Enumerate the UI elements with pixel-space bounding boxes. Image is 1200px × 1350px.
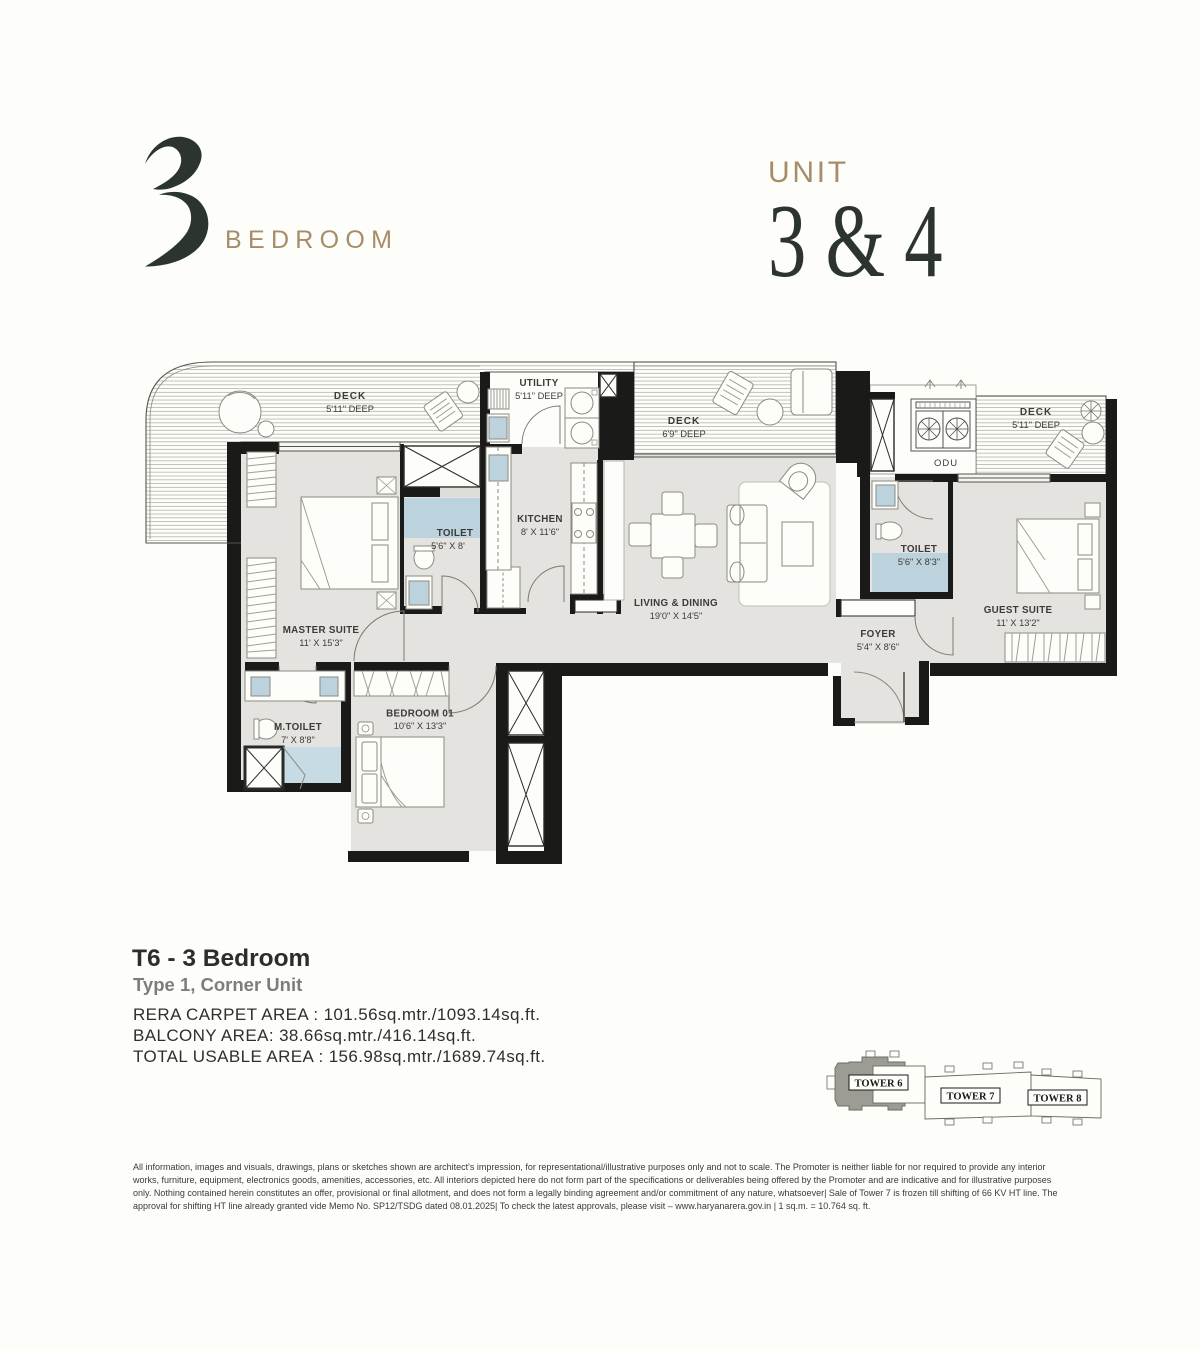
svg-text:TOILET: TOILET [437,528,473,539]
svg-text:TOILET: TOILET [901,544,937,555]
svg-text:LIVING & DINING: LIVING & DINING [634,598,718,609]
svg-text:TOWER 7: TOWER 7 [947,1092,995,1103]
svg-text:5'6" X 8'3": 5'6" X 8'3" [898,557,940,567]
svg-text:7' X 8'8": 7' X 8'8" [281,735,315,745]
svg-text:11' X 13'2": 11' X 13'2" [996,618,1039,628]
svg-text:8' X 11'6": 8' X 11'6" [521,527,559,537]
svg-text:5'11" DEEP: 5'11" DEEP [1012,420,1060,430]
svg-text:DECK: DECK [334,391,366,402]
svg-text:19'0" X 14'5": 19'0" X 14'5" [650,611,703,621]
svg-text:UTILITY: UTILITY [519,378,558,389]
svg-text:10'6" X 13'3": 10'6" X 13'3" [394,721,447,731]
svg-text:5'4" X 8'6": 5'4" X 8'6" [857,642,899,652]
svg-text:GUEST SUITE: GUEST SUITE [984,605,1053,616]
svg-text:DECK: DECK [668,416,700,427]
svg-text:5'6" X 8': 5'6" X 8' [431,541,465,551]
svg-text:MASTER SUITE: MASTER SUITE [283,625,360,636]
svg-text:M.TOILET: M.TOILET [274,722,322,733]
svg-text:FOYER: FOYER [860,629,895,640]
svg-text:5'11" DEEP: 5'11" DEEP [515,391,563,401]
svg-text:BEDROOM 01: BEDROOM 01 [386,709,454,720]
svg-text:11' X 15'3": 11' X 15'3" [299,638,342,648]
svg-text:KITCHEN: KITCHEN [517,514,563,525]
svg-text:TOWER 8: TOWER 8 [1034,1094,1082,1105]
svg-text:ODU: ODU [934,458,958,469]
svg-text:TOWER 6: TOWER 6 [855,1079,903,1090]
svg-text:5'11" DEEP: 5'11" DEEP [326,404,374,414]
svg-text:DECK: DECK [1020,407,1052,418]
svg-text:6'9" DEEP: 6'9" DEEP [662,429,705,439]
